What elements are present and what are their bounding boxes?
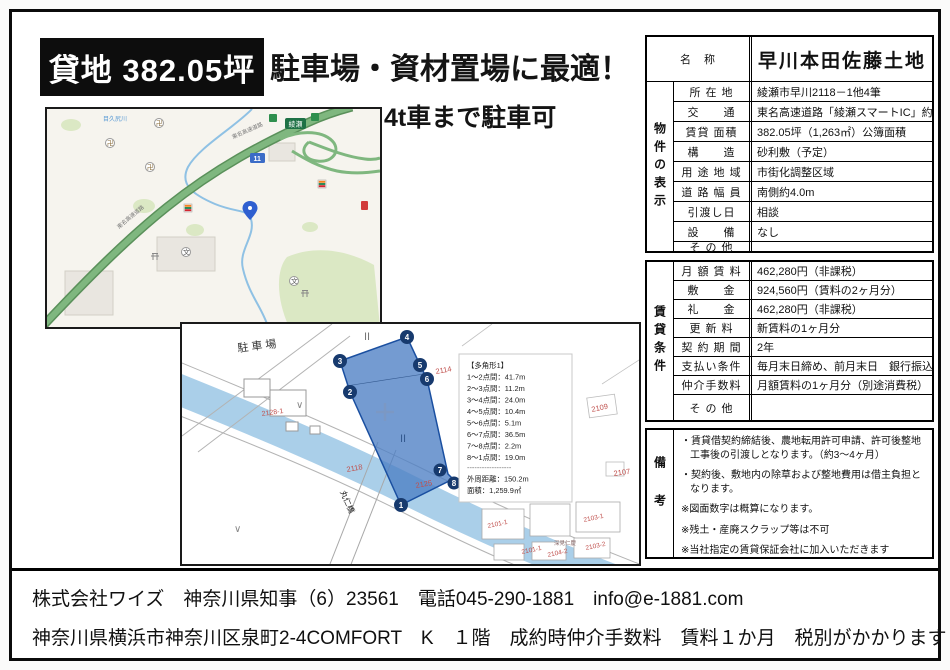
polygon-title: 【多角形1】 (467, 361, 508, 370)
remark-item: ※当社指定の賃貸保証会社に加入いただきます (681, 544, 925, 557)
grass-mark: ∨ (296, 400, 303, 411)
measurement-line: 5～6点間：5.1m (467, 419, 521, 428)
remarks-section: 備考 ・賃貸借契約締結後、農地転用許可申請、許可後整地工事後の引渡しとなります。… (645, 428, 934, 559)
company-address-line: 神奈川県横浜市神奈川区泉町2-4COMFORT K １階 成約時仲介手数料 賃料… (32, 623, 918, 650)
svg-text:1: 1 (399, 501, 404, 510)
park-area (186, 224, 204, 236)
svg-text:卍: 卍 (107, 140, 114, 148)
property-name: 早川本田佐藤土地 (749, 37, 932, 81)
svg-text:文: 文 (291, 277, 298, 286)
building-outline (310, 426, 320, 434)
measurement-line: 8～1点間：19.0m (467, 453, 525, 462)
svg-text:3: 3 (338, 357, 343, 366)
lease-conditions-section: 賃貸条件 月 額 賃 料462,280円（非課税） 敷 金924,560円（賃料… (645, 260, 934, 422)
table-row: 更 新 料新賃料の1ヶ月分 (674, 318, 932, 337)
park-area (279, 250, 380, 327)
svg-text:卍: 卍 (147, 164, 154, 172)
measurement-divider: ------------------ (467, 463, 512, 472)
etc-icon (269, 114, 277, 122)
building-block (269, 143, 295, 161)
etc-icon (311, 113, 319, 121)
measurement-line: 6～7点間：36.5m (467, 430, 525, 439)
seven-eleven-icon (184, 204, 192, 212)
svg-text:4: 4 (405, 333, 410, 342)
school-icon: 文 (182, 248, 191, 257)
display-section-vertical-label: 物件の表示 (647, 82, 674, 251)
ic-sign-label: 綾瀬 (289, 120, 303, 129)
site-map-svg: 丸仁橋 駐車場 2128-1 II II ∨ ∨ 2118 2114 2125 (182, 324, 639, 564)
svg-text:2: 2 (348, 388, 353, 397)
temple-icon: 卍 (155, 119, 164, 128)
remark-item: ・賃貸借契約締結後、農地転用許可申請、許可後整地工事後の引渡しとなります。（約3… (681, 435, 925, 462)
measurement-line: 7～8点間：2.2m (467, 442, 521, 451)
svg-text:文: 文 (183, 248, 190, 257)
temple-icon: 卍 (106, 139, 115, 148)
table-row: 礼 金462,280円（非課税） (674, 299, 932, 318)
measurement-box: 【多角形1】 1～2点間：41.7m 2～3点間：11.2m 3～4点間：24.… (459, 354, 572, 502)
store-icon (361, 201, 368, 210)
measurement-line: 4～5点間：10.4m (467, 407, 525, 416)
table-row: 交 通東名高速道路「綾瀬スマートIC」約1km (674, 101, 932, 121)
table-row: 敷 金924,560円（賃料の2ヶ月分） (674, 280, 932, 299)
svg-text:8: 8 (452, 479, 457, 488)
remark-item: ※残土・産廃スクラップ等は不可 (681, 524, 925, 538)
park-area (302, 222, 318, 232)
building-outline (286, 422, 298, 431)
table-row: 構 造砂利敷（予定） (674, 141, 932, 161)
headline: 駐車場・資材置場に最適！ (270, 44, 630, 88)
table-row: 賃貸 面積382.05坪（1,263㎡）公簿面積 (674, 121, 932, 141)
svg-text:7: 7 (438, 466, 443, 475)
table-row: 引渡し日相談 (674, 201, 932, 221)
table-row: 契 約 期 間2年 (674, 337, 932, 356)
land-size-badge: 貸地 382.05坪 (40, 38, 264, 96)
road-map-svg: 目久尻川 東名高速道路 東名高速道路 綾瀬 11 卍 (47, 109, 380, 327)
table-row: そ の 他 (674, 394, 932, 420)
table-row: 道 路 幅 員南側約4.0m (674, 181, 932, 201)
measurement-line: 3～4点間：24.0m (467, 396, 525, 405)
area-line: 面積：1,259.9㎡ (467, 486, 522, 495)
school-icon: 文 (290, 277, 299, 286)
name-label: 名 称 (647, 37, 749, 81)
property-display-section: 名 称 早川本田佐藤土地 物件の表示 所 在 地綾瀬市早川2118－1他4筆 交… (645, 35, 934, 253)
cadastral-site-map: 丸仁橋 駐車場 2128-1 II II ∨ ∨ 2118 2114 2125 (180, 322, 641, 566)
remarks-notes: ・賃貸借契約締結後、農地転用許可申請、許可後整地工事後の引渡しとなります。（約3… (674, 430, 932, 557)
svg-text:6: 6 (425, 375, 430, 384)
route-shield-number: 11 (254, 156, 262, 163)
river-name-label: 目久尻川 (103, 115, 127, 123)
svg-text:卍: 卍 (156, 120, 163, 128)
remarks-vertical-label: 備考 (647, 430, 674, 557)
table-row: 支払い条件毎月末日締め、前月末日 銀行振込 (674, 356, 932, 375)
svg-text:5: 5 (418, 361, 423, 370)
field-mark: II (364, 331, 370, 343)
table-row: 仲介手数料月額賃料の1ヶ月分（別途消費税） (674, 375, 932, 394)
seven-eleven-icon (318, 180, 326, 188)
remark-item: ・契約後、敷地内の除草および整地費用は借主負担となります。 (681, 469, 925, 496)
measurement-line: 2～3点間：11.2m (467, 384, 525, 393)
temple-icon: 卍 (146, 163, 155, 172)
building-outline (244, 379, 270, 397)
table-row: そ の 他 (674, 241, 932, 251)
grass-mark: ∨ (234, 524, 241, 535)
lease-section-vertical-label: 賃貸条件 (647, 262, 674, 420)
sub-headline: 4t車まで駐車可 (384, 98, 556, 134)
table-row: 用 途 地 域市街化調整区域 (674, 161, 932, 181)
company-license-line: 株式会社ワイズ 神奈川県知事（6）23561 電話045-290-1881 in… (32, 584, 918, 611)
svg-text:深見仁慶: 深見仁慶 (554, 539, 577, 547)
area-road-map: 目久尻川 東名高速道路 東名高速道路 綾瀬 11 卍 (45, 107, 382, 329)
remark-item: ※図面数字は概算になります。 (681, 503, 925, 517)
flyer-page: 貸地 382.05坪 駐車場・資材置場に最適！ 4t車まで駐車可 目久尻川 (9, 9, 941, 661)
park-area (61, 119, 81, 131)
property-name-row: 名 称 早川本田佐藤土地 (647, 37, 932, 81)
table-row: 所 在 地綾瀬市早川2118－1他4筆 (674, 82, 932, 101)
measurement-line: 1～2点間：41.7m (467, 373, 525, 382)
company-footer: 株式会社ワイズ 神奈川県知事（6）23561 電話045-290-1881 in… (12, 568, 938, 658)
field-mark: II (400, 433, 406, 445)
table-row: 月 額 賃 料462,280円（非課税） (674, 262, 932, 280)
perimeter-line: 外周距離：150.2m (467, 475, 529, 484)
